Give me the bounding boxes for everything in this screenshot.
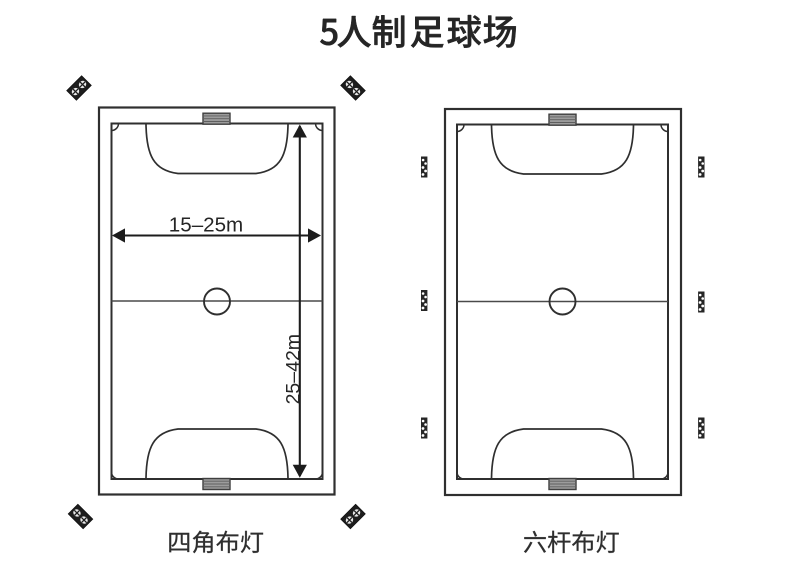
svg-text:15–25m: 15–25m [169,214,243,237]
svg-text:25–42m: 25–42m [282,334,304,404]
